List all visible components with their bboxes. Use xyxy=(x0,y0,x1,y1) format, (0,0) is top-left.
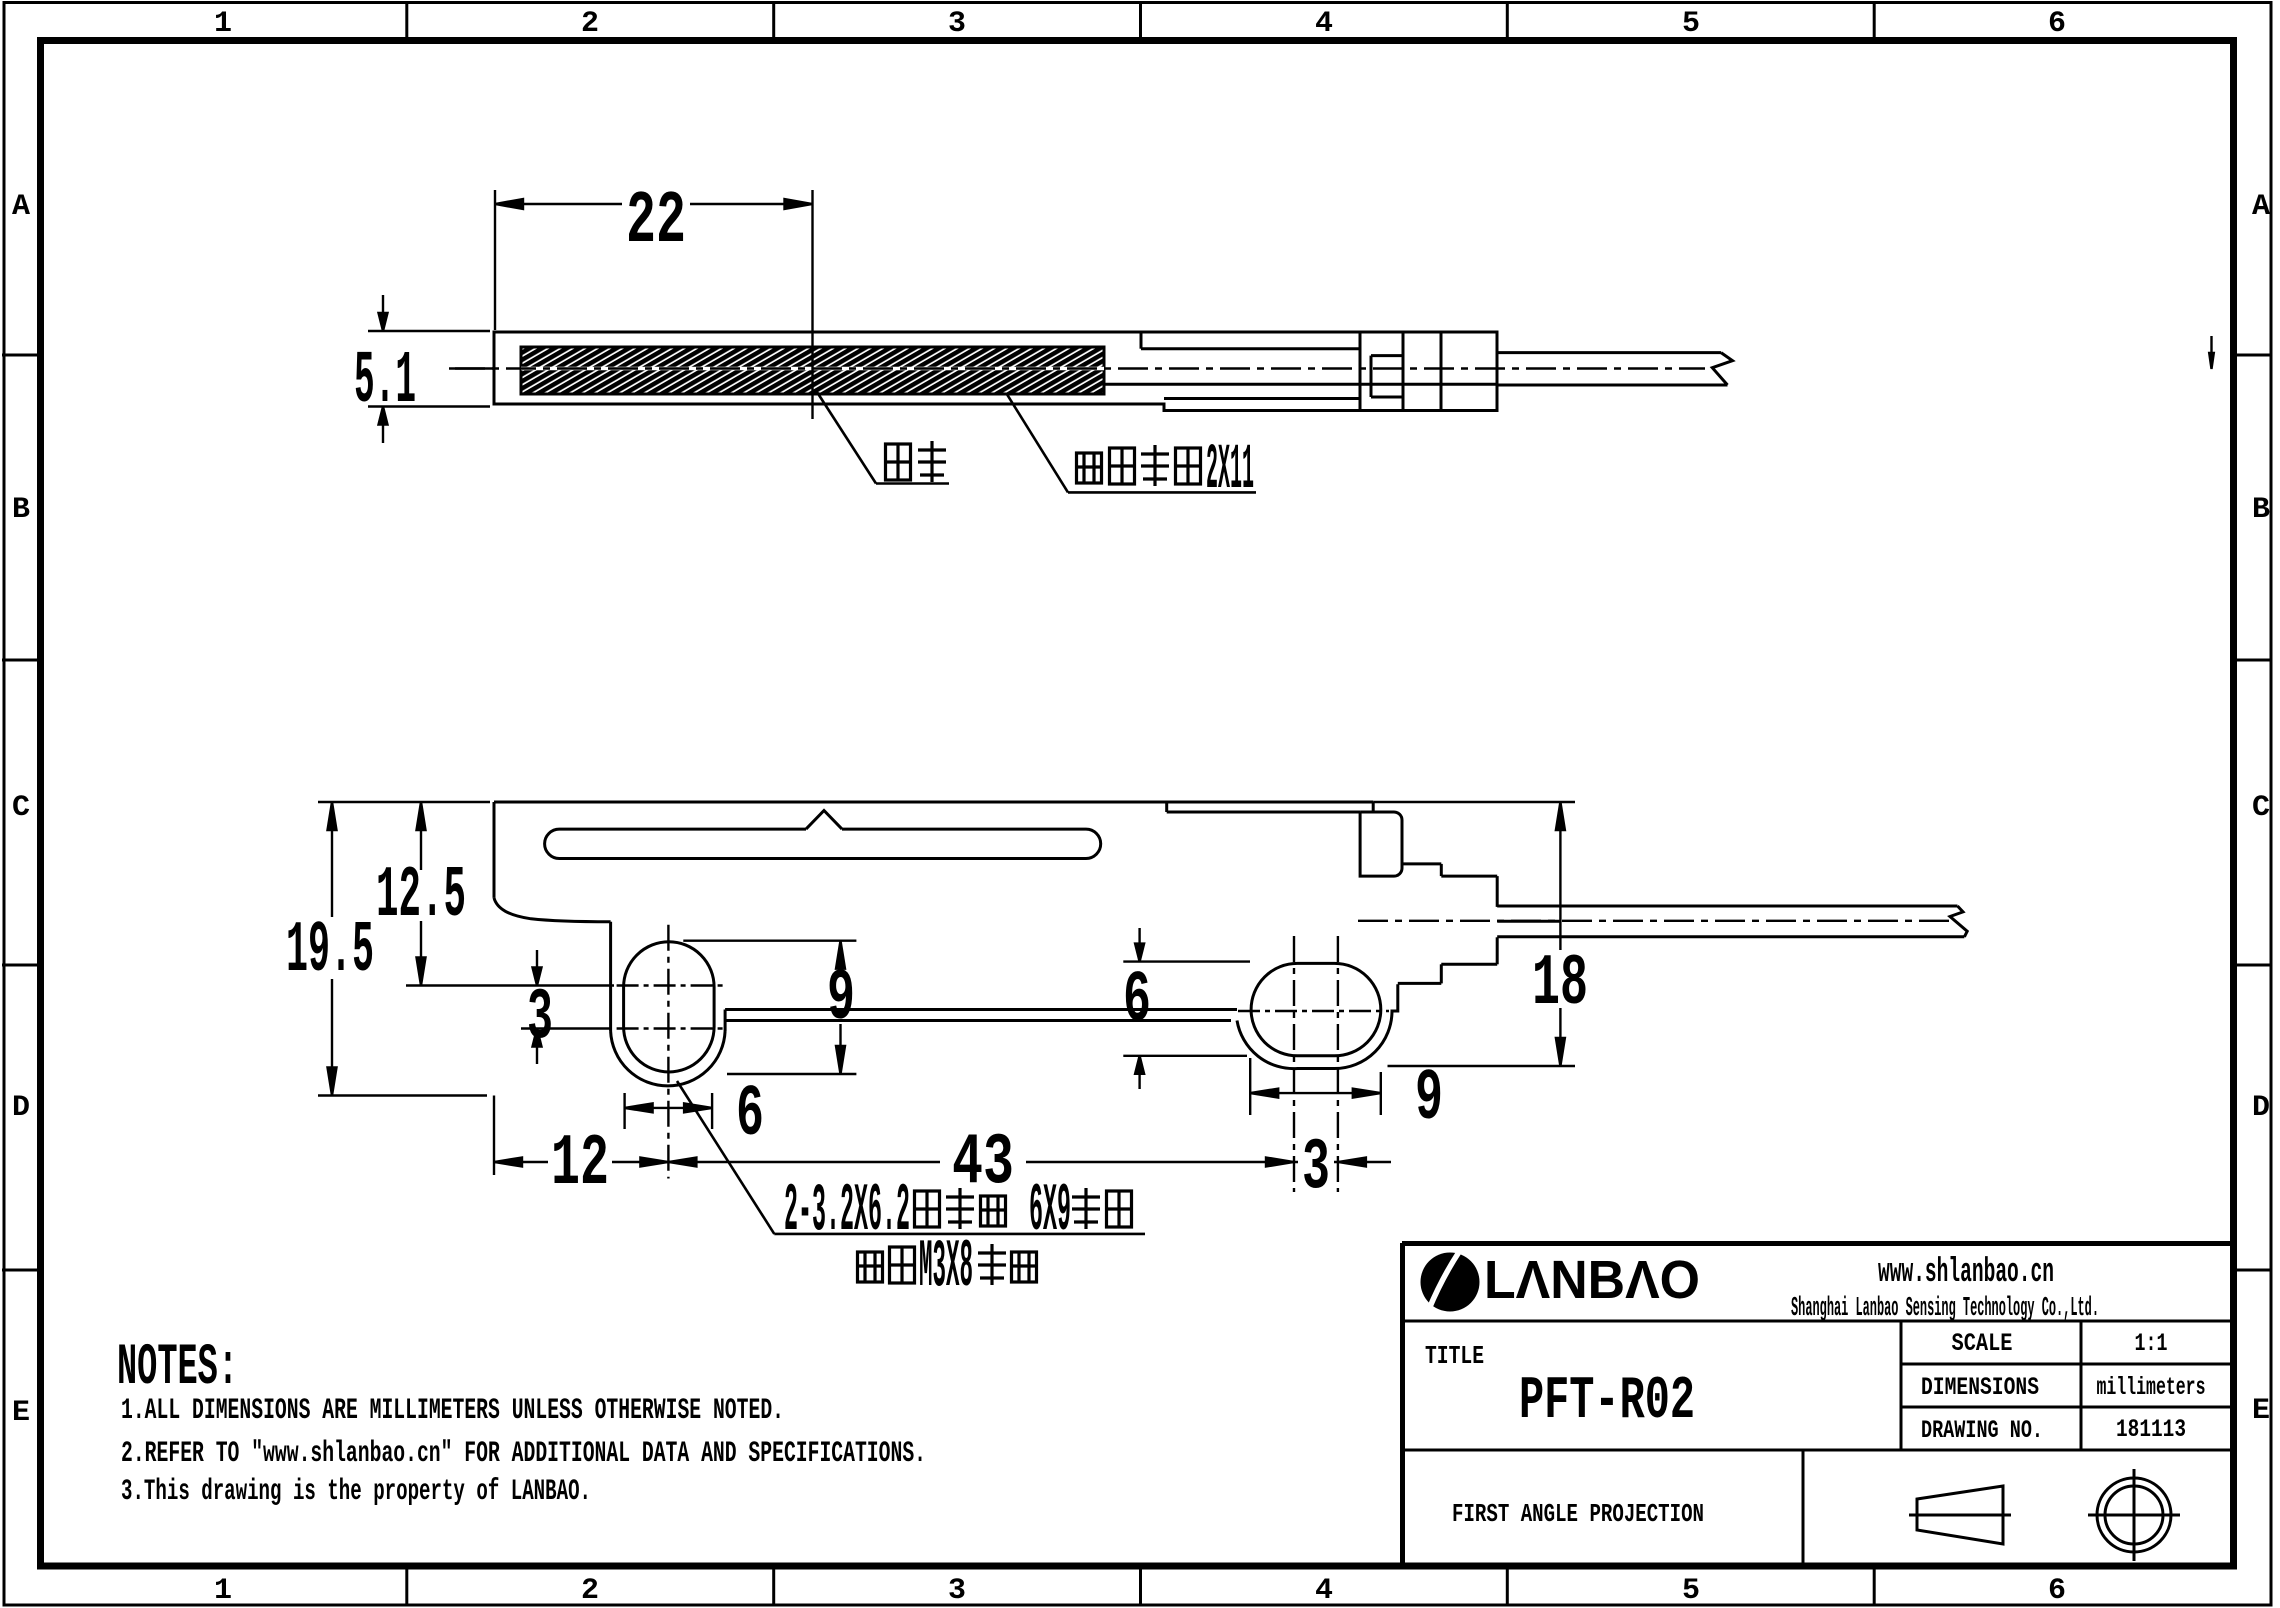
svg-text:1: 1 xyxy=(214,7,232,41)
svg-text:19.5: 19.5 xyxy=(286,910,374,992)
svg-text:3.This drawing is the property: 3.This drawing is the property of LANBAO… xyxy=(121,1475,591,1509)
svg-text:4: 4 xyxy=(1315,7,1333,41)
svg-text:2: 2 xyxy=(581,1574,599,1608)
svg-text:6: 6 xyxy=(2048,1574,2066,1608)
svg-text:NOTES:: NOTES: xyxy=(117,1336,238,1401)
svg-text:FIRST ANGLE PROJECTION: FIRST ANGLE PROJECTION xyxy=(1452,1499,1704,1529)
svg-text:18: 18 xyxy=(1532,943,1588,1025)
svg-text:22: 22 xyxy=(626,180,686,264)
svg-text:2X11: 2X11 xyxy=(1206,435,1254,507)
svg-text:Shanghai Lanbao Sensing Techno: Shanghai Lanbao Sensing Technology Co.,L… xyxy=(1791,1294,2099,1324)
svg-text:A: A xyxy=(12,190,30,224)
svg-text:DIMENSIONS: DIMENSIONS xyxy=(1921,1373,2039,1402)
svg-text:5: 5 xyxy=(1682,7,1700,41)
svg-text:5.1: 5.1 xyxy=(354,340,416,424)
svg-text:1.ALL DIMENSIONS ARE MILLIMETE: 1.ALL DIMENSIONS ARE MILLIMETERS UNLESS … xyxy=(121,1394,784,1428)
svg-text:3: 3 xyxy=(948,7,966,41)
svg-text:5: 5 xyxy=(1682,1574,1700,1608)
svg-text:6X9: 6X9 xyxy=(1029,1173,1071,1250)
svg-text:181113: 181113 xyxy=(2116,1415,2186,1444)
svg-text:LΛNBΛO: LΛNBΛO xyxy=(1484,1250,1700,1310)
svg-text:6: 6 xyxy=(2048,7,2066,41)
svg-text:9: 9 xyxy=(1415,1058,1443,1140)
svg-text:6: 6 xyxy=(736,1074,764,1156)
svg-text:3: 3 xyxy=(527,977,553,1059)
svg-text:B: B xyxy=(12,493,30,527)
svg-text:2-3.2X6.2: 2-3.2X6.2 xyxy=(784,1173,910,1250)
svg-text:M3X8: M3X8 xyxy=(919,1229,973,1306)
svg-text:E: E xyxy=(12,1396,30,1430)
svg-text:www.shlanbao.cn: www.shlanbao.cn xyxy=(1878,1254,2054,1292)
svg-text:2: 2 xyxy=(581,7,599,41)
svg-text:3: 3 xyxy=(948,1574,966,1608)
svg-text:1:1: 1:1 xyxy=(2135,1329,2168,1358)
svg-text:E: E xyxy=(2252,1394,2270,1428)
svg-text:12.5: 12.5 xyxy=(376,855,466,937)
svg-text:millimeters: millimeters xyxy=(2097,1373,2206,1402)
svg-text:2.REFER TO ″www.shlanbao.cn″ F: 2.REFER TO ″www.shlanbao.cn″ FOR ADDITIO… xyxy=(121,1437,926,1471)
svg-text:SCALE: SCALE xyxy=(1952,1329,2013,1358)
svg-text:3: 3 xyxy=(1302,1127,1330,1209)
svg-text:A: A xyxy=(2252,190,2270,224)
svg-text:12: 12 xyxy=(551,1123,609,1205)
svg-text:6: 6 xyxy=(1123,960,1151,1042)
svg-text:TITLE: TITLE xyxy=(1425,1341,1484,1371)
svg-text:D: D xyxy=(2252,1091,2270,1125)
svg-text:1: 1 xyxy=(214,1574,232,1608)
svg-text:B: B xyxy=(2252,493,2270,527)
svg-text:4: 4 xyxy=(1315,1574,1333,1608)
svg-text:D: D xyxy=(12,1091,30,1125)
svg-text:9: 9 xyxy=(827,958,855,1040)
svg-text:C: C xyxy=(12,791,30,825)
svg-text:C: C xyxy=(2252,791,2270,825)
svg-text:DRAWING NO.: DRAWING NO. xyxy=(1921,1416,2043,1445)
svg-text:PFT-R02: PFT-R02 xyxy=(1519,1368,1695,1436)
